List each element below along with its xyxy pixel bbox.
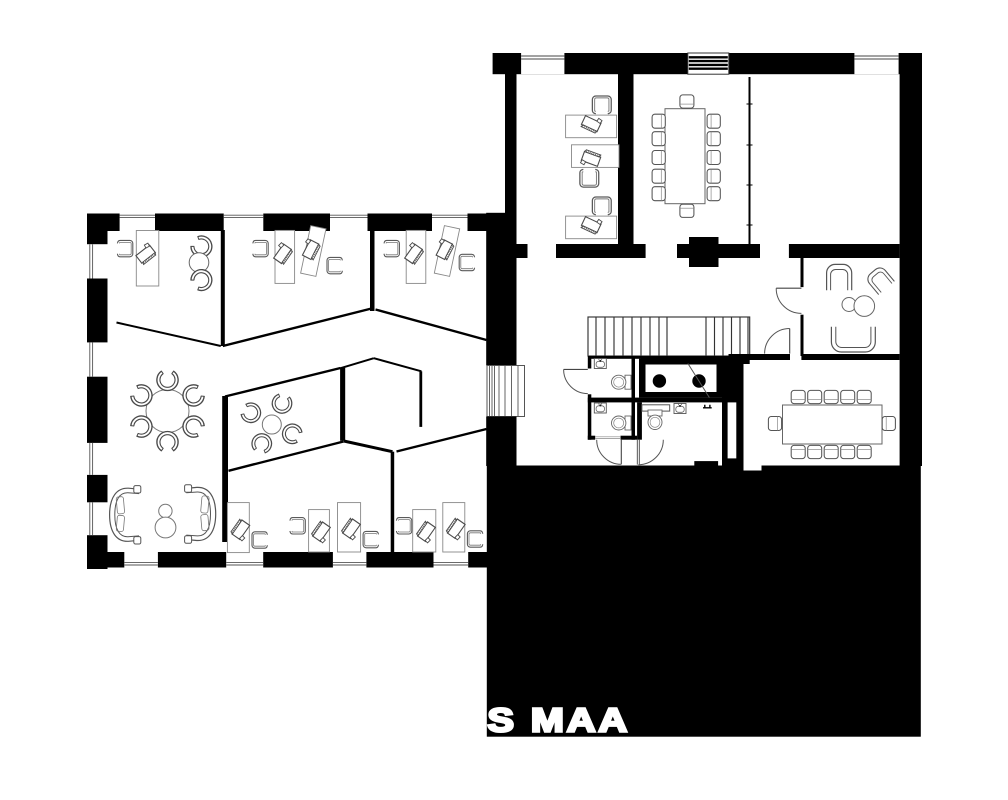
svg-text:S MAA: S MAA — [488, 702, 631, 739]
